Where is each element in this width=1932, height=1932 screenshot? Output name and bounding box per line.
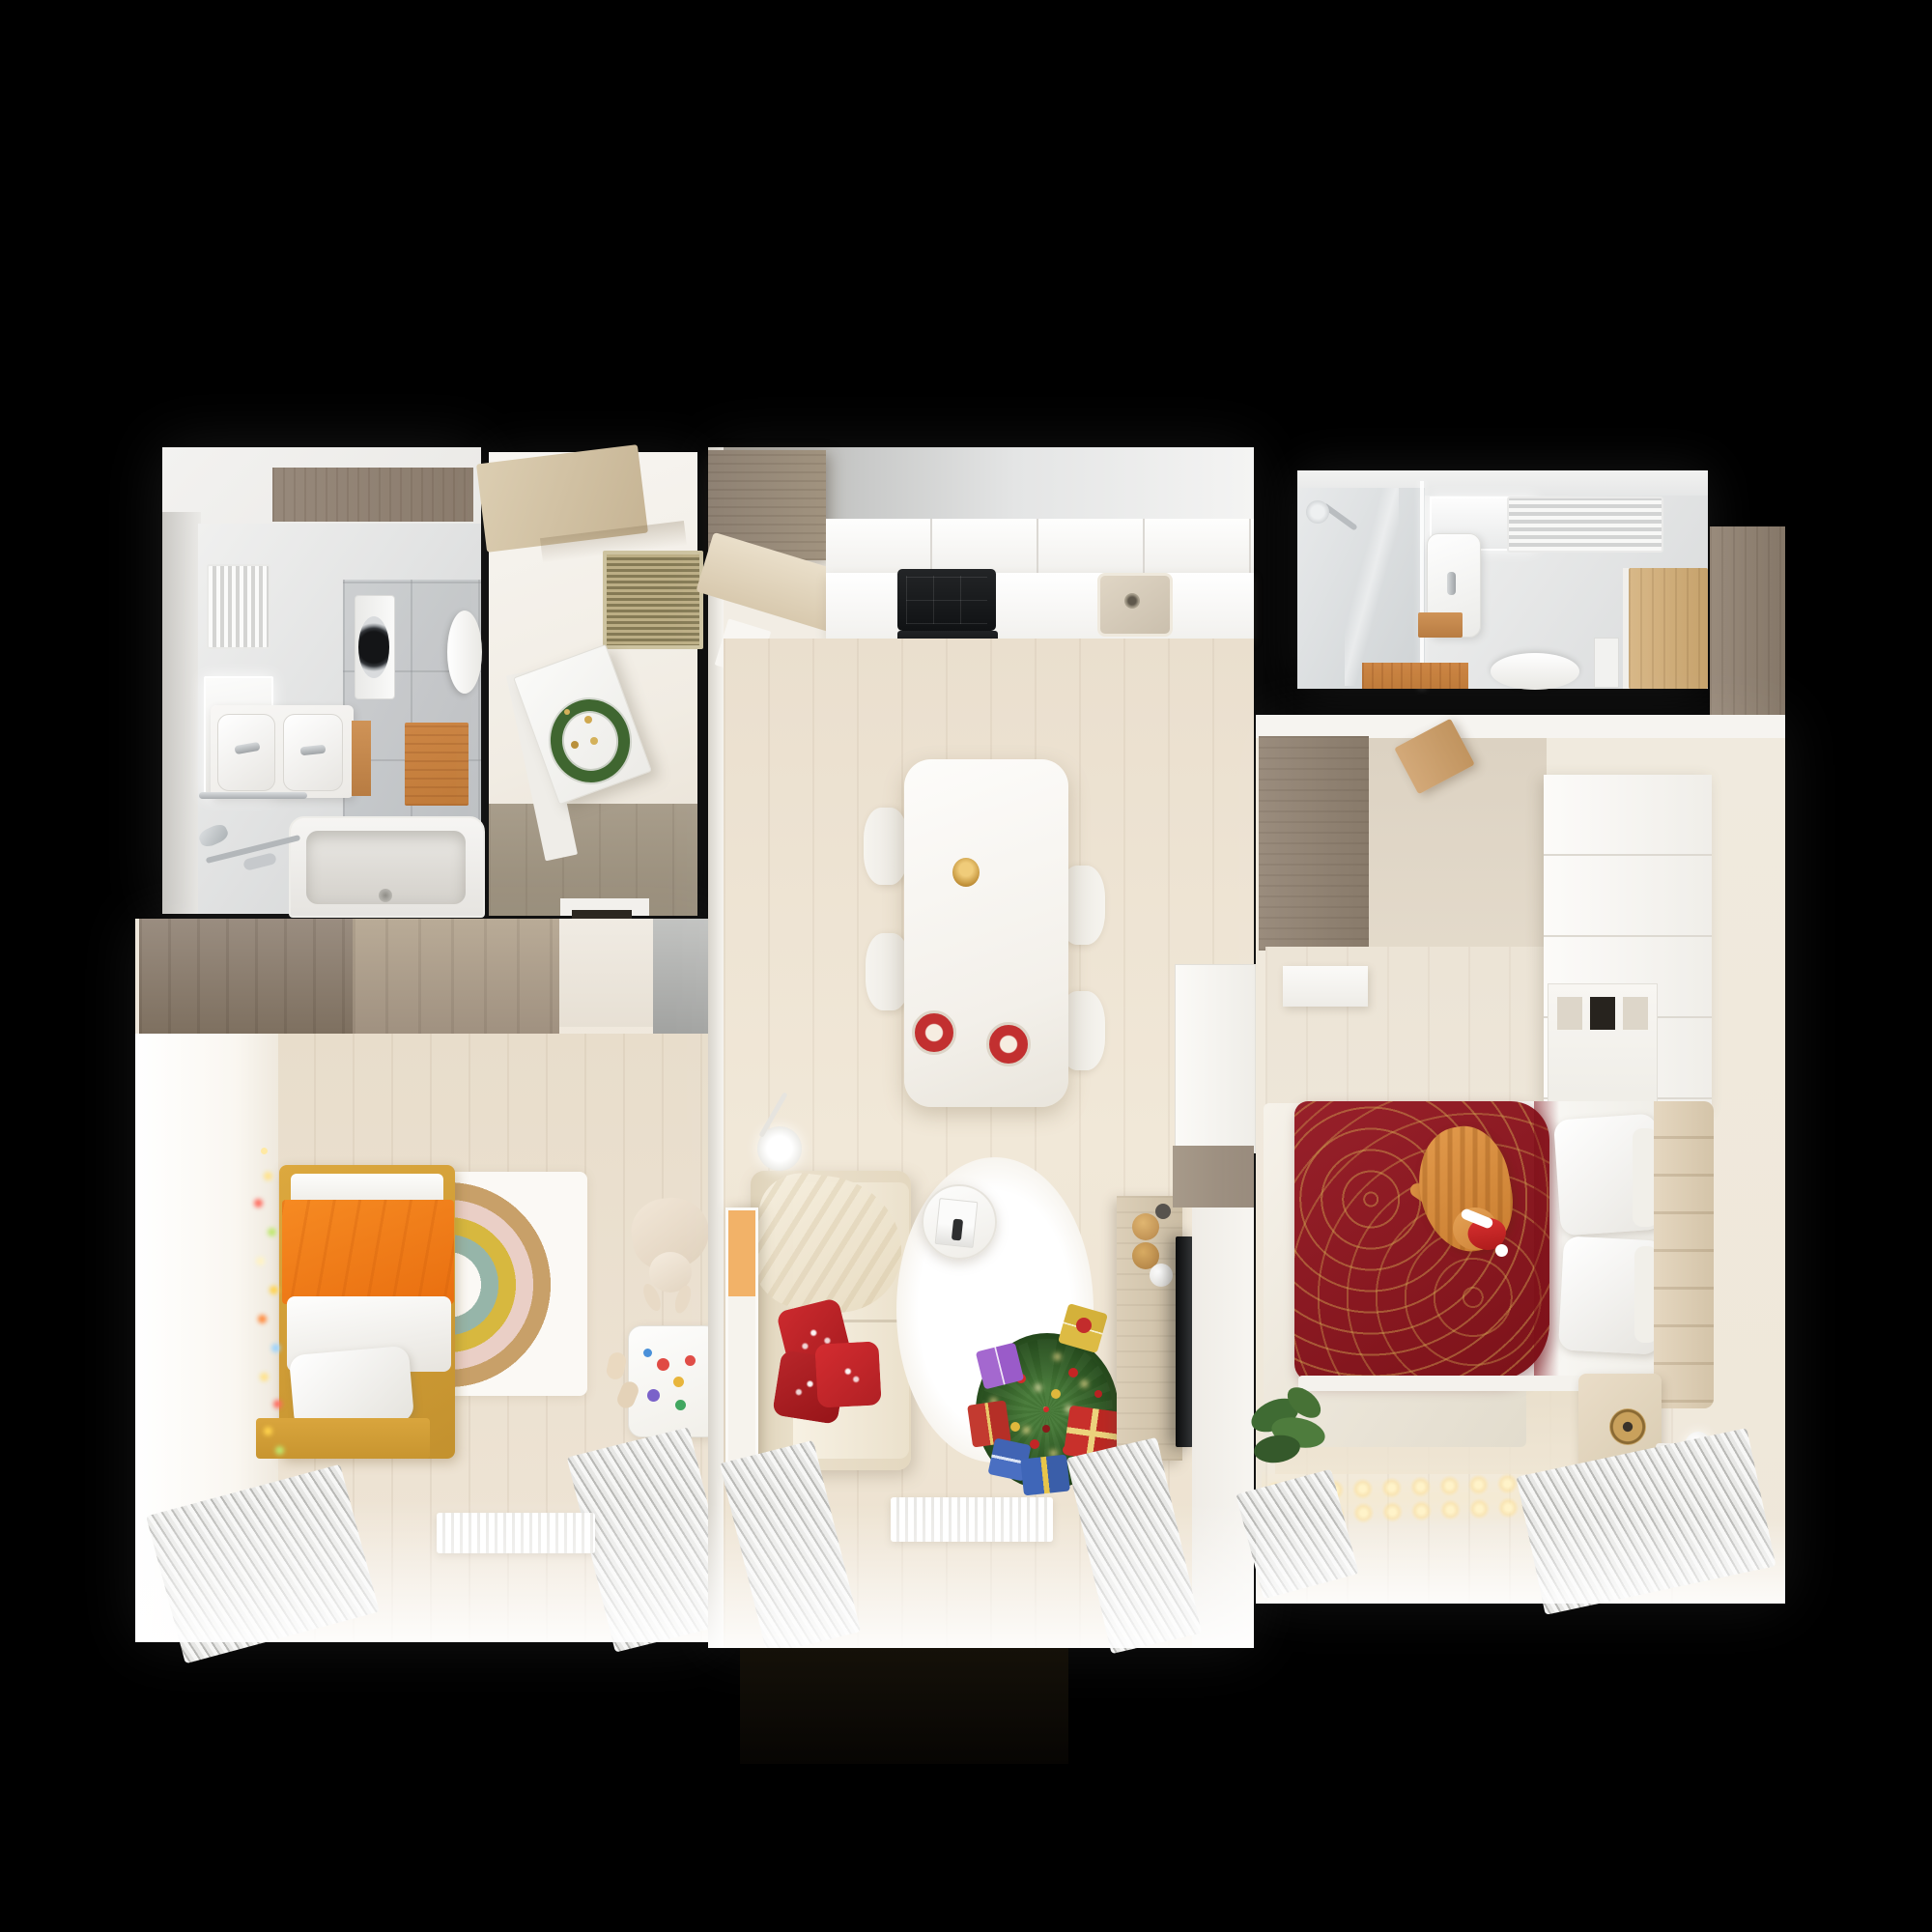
br-ceiling-band <box>1256 715 1785 738</box>
b1-wood-cabinet-side <box>352 721 371 796</box>
br-cubby-2 <box>1590 997 1615 1030</box>
b2-glass-panel-line <box>1420 481 1424 688</box>
kitchen-upper-cabinets <box>826 519 1254 575</box>
right-wall-cabinet <box>1175 964 1256 1153</box>
kids-play-table <box>628 1325 719 1437</box>
b2-wood-shelf <box>1418 612 1463 638</box>
dining-table <box>904 759 1068 1107</box>
br-red-duvet <box>1294 1101 1549 1381</box>
b2-towel-radiator <box>1507 497 1663 553</box>
gift-yellow-bow <box>1076 1318 1092 1333</box>
dining-chair-1 <box>864 808 908 885</box>
b2-wood-mat <box>1362 663 1468 689</box>
right-taupe-block <box>1173 1146 1254 1207</box>
sofa-red-pillow-3 <box>814 1341 881 1407</box>
kitchen-countertop <box>826 573 1254 639</box>
br-cubby-1 <box>1557 997 1582 1030</box>
balcony-shadow <box>740 1648 1068 1764</box>
kitchen-sink-drain <box>1124 593 1140 609</box>
tv-panel <box>1176 1236 1193 1447</box>
tree-baubles <box>1043 1406 1049 1412</box>
kids-wardrobe-dark <box>139 919 353 1034</box>
kids-balcony-glow <box>135 1499 715 1642</box>
dining-red-mug-2 <box>986 1022 1031 1066</box>
dining-candle-holder <box>952 858 980 887</box>
living-balcony-glow <box>708 1503 1254 1648</box>
kids-rainbow-rug-print <box>448 1182 587 1387</box>
br-balcony-glow <box>1256 1517 1785 1604</box>
br-wall-shelf <box>1283 966 1368 1007</box>
decor-ball-dark <box>1155 1204 1171 1219</box>
b1-tub-drain <box>379 889 392 902</box>
gift-blue-2 <box>1020 1455 1070 1496</box>
kitchen-cooktop-grid <box>906 576 987 624</box>
leaning-art-frame <box>725 1207 758 1482</box>
br-cubby-3 <box>1623 997 1648 1030</box>
b2-shower-head <box>1306 500 1329 524</box>
kids-orange-blanket <box>282 1200 454 1304</box>
b1-bath-mat <box>405 723 469 806</box>
b1-towel-radiator <box>207 564 270 649</box>
b2-sink-faucet <box>1447 572 1456 595</box>
santa-hat-pompom <box>1495 1244 1508 1257</box>
br-wardrobe-top-left <box>1259 736 1369 951</box>
b1-towel-bar <box>199 792 307 799</box>
kids-foot-shelf <box>256 1418 430 1459</box>
decor-ball-wood-1 <box>1132 1213 1159 1240</box>
b1-left-wall-shade <box>162 512 201 914</box>
b2-toilet <box>1491 653 1579 690</box>
entry-bamboo-blind <box>603 551 703 649</box>
floorplan-scene <box>0 0 1932 1932</box>
b1-washer-door <box>358 616 389 678</box>
entry-wreath-berries <box>564 709 570 715</box>
br-wood-clock <box>1609 1408 1646 1445</box>
b2-wall-niche <box>1594 638 1619 688</box>
b2-wood-door <box>1629 568 1708 689</box>
b2-glass-streak <box>1345 488 1399 686</box>
kids-fairy-lights <box>261 1148 268 1154</box>
b1-toilet <box>447 611 482 694</box>
kids-wardrobe-light <box>353 919 559 1034</box>
b1-wood-wall-band <box>272 468 473 522</box>
br-headboard <box>1654 1101 1714 1408</box>
dining-red-mug-1 <box>912 1010 956 1055</box>
decor-ball-white <box>1150 1264 1173 1287</box>
kids-table-doodles <box>643 1349 652 1357</box>
